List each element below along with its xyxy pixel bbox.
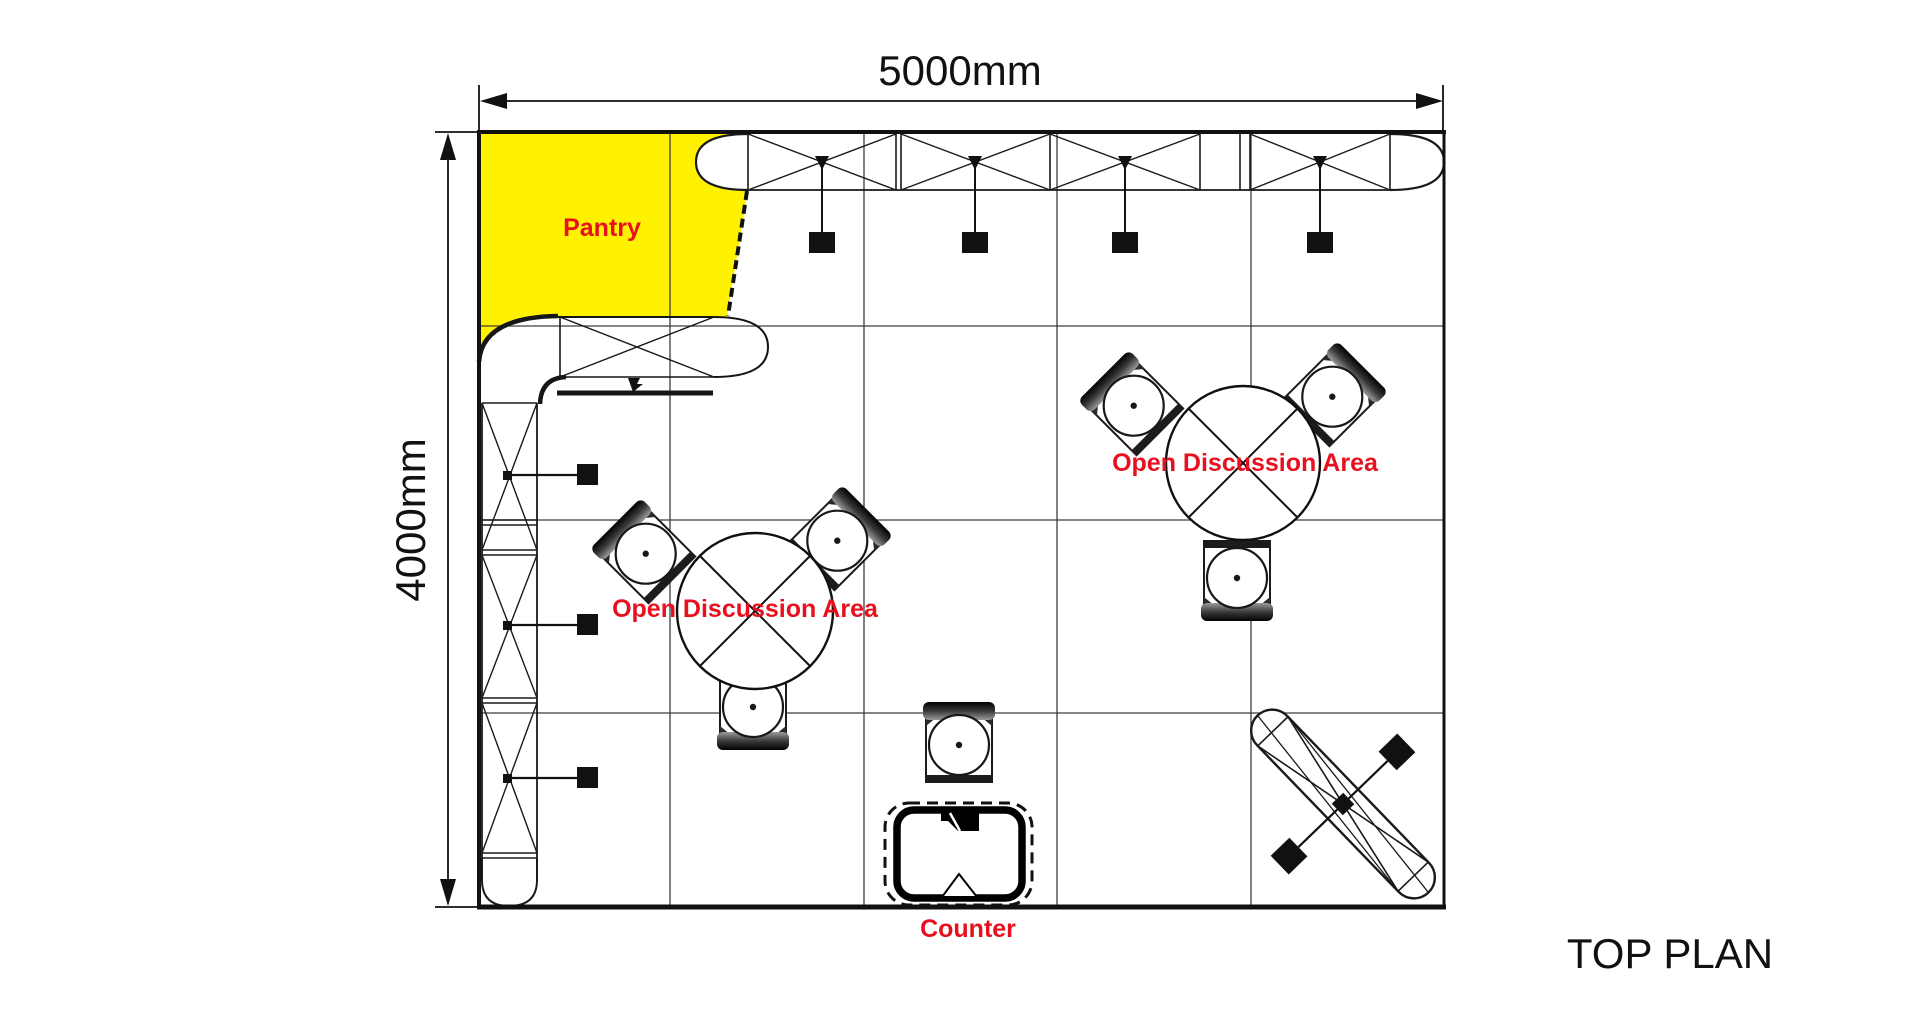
- top-truss: [696, 134, 1444, 190]
- counter-group: [885, 702, 1032, 905]
- floor-plan-drawing: 5000mm 4000mm: [0, 0, 1920, 1012]
- wall-light: [503, 767, 598, 788]
- width-dimension-label: 5000mm: [878, 47, 1041, 94]
- chair: [923, 702, 995, 782]
- wall-light: [503, 464, 598, 485]
- width-dimension: 5000mm: [479, 47, 1443, 132]
- left-truss-lights: [503, 464, 598, 788]
- left-truss-bottom-cap: [482, 858, 537, 906]
- discussion-area-1-label: Open Discussion Area: [612, 595, 879, 623]
- top-truss-lights: [809, 156, 1333, 253]
- discussion-table-2: [1078, 341, 1388, 621]
- down-arrowhead: [440, 879, 456, 906]
- height-dimension-label: 4000mm: [387, 438, 434, 601]
- pantry-corner-assembly: [479, 316, 768, 404]
- right-arrowhead: [1416, 93, 1443, 109]
- pantry-label: Pantry: [563, 214, 641, 242]
- discussion-area-2-label: Open Discussion Area: [1112, 449, 1379, 477]
- counter-label: Counter: [920, 915, 1016, 943]
- chair: [1201, 541, 1273, 621]
- height-dimension: 4000mm: [387, 132, 477, 907]
- hanging-light: [962, 156, 988, 253]
- top-plan-title: TOP PLAN: [1567, 930, 1773, 977]
- hanging-light: [1112, 156, 1138, 253]
- up-arrowhead: [440, 133, 456, 160]
- left-arrowhead: [480, 93, 507, 109]
- top-truss-right-cap: [1390, 134, 1444, 190]
- hanging-light: [809, 156, 835, 253]
- wall-light: [503, 614, 598, 635]
- hanging-light: [1307, 156, 1333, 253]
- top-truss-x-bracing: [748, 134, 1390, 190]
- desk-fixture-icon: [628, 378, 643, 392]
- floor-plan-sheet: 5000mm 4000mm: [0, 0, 1920, 1012]
